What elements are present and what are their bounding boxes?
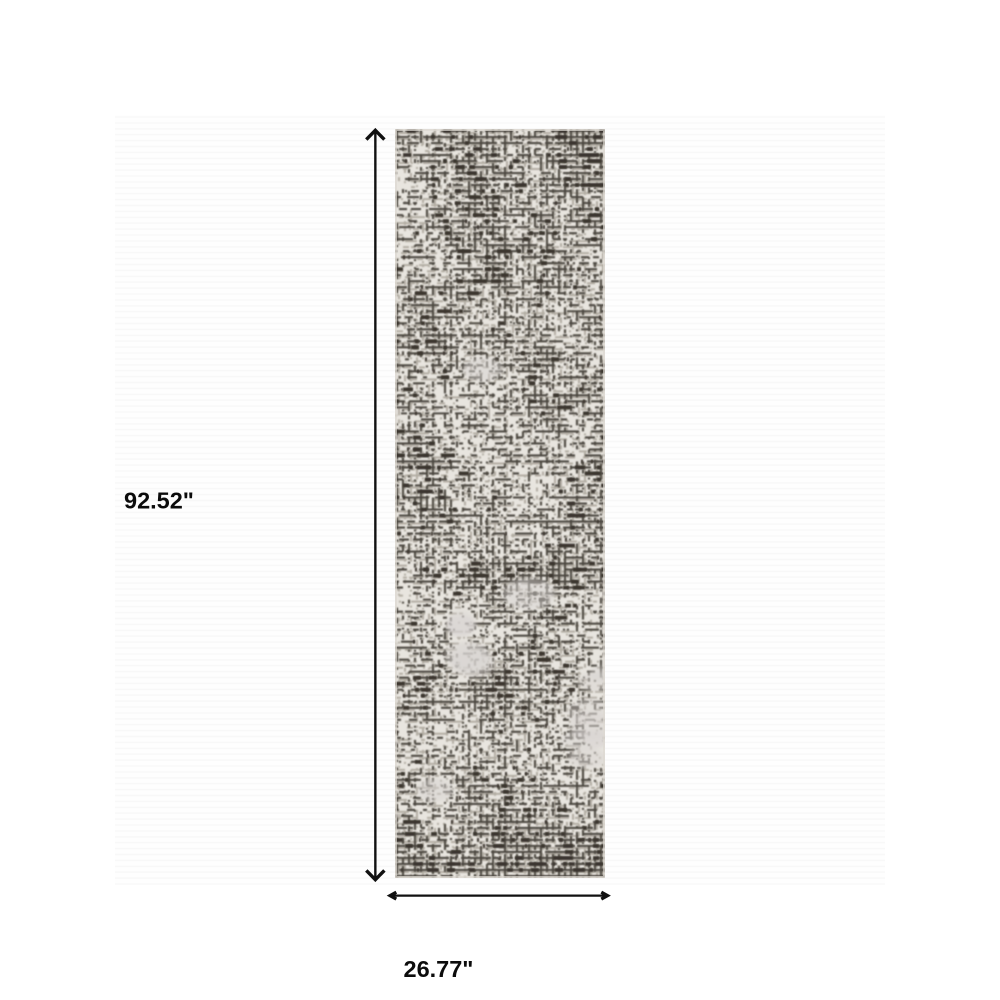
svg-text:26.77": 26.77" [404, 956, 474, 982]
svg-text:92.52": 92.52" [124, 488, 194, 514]
